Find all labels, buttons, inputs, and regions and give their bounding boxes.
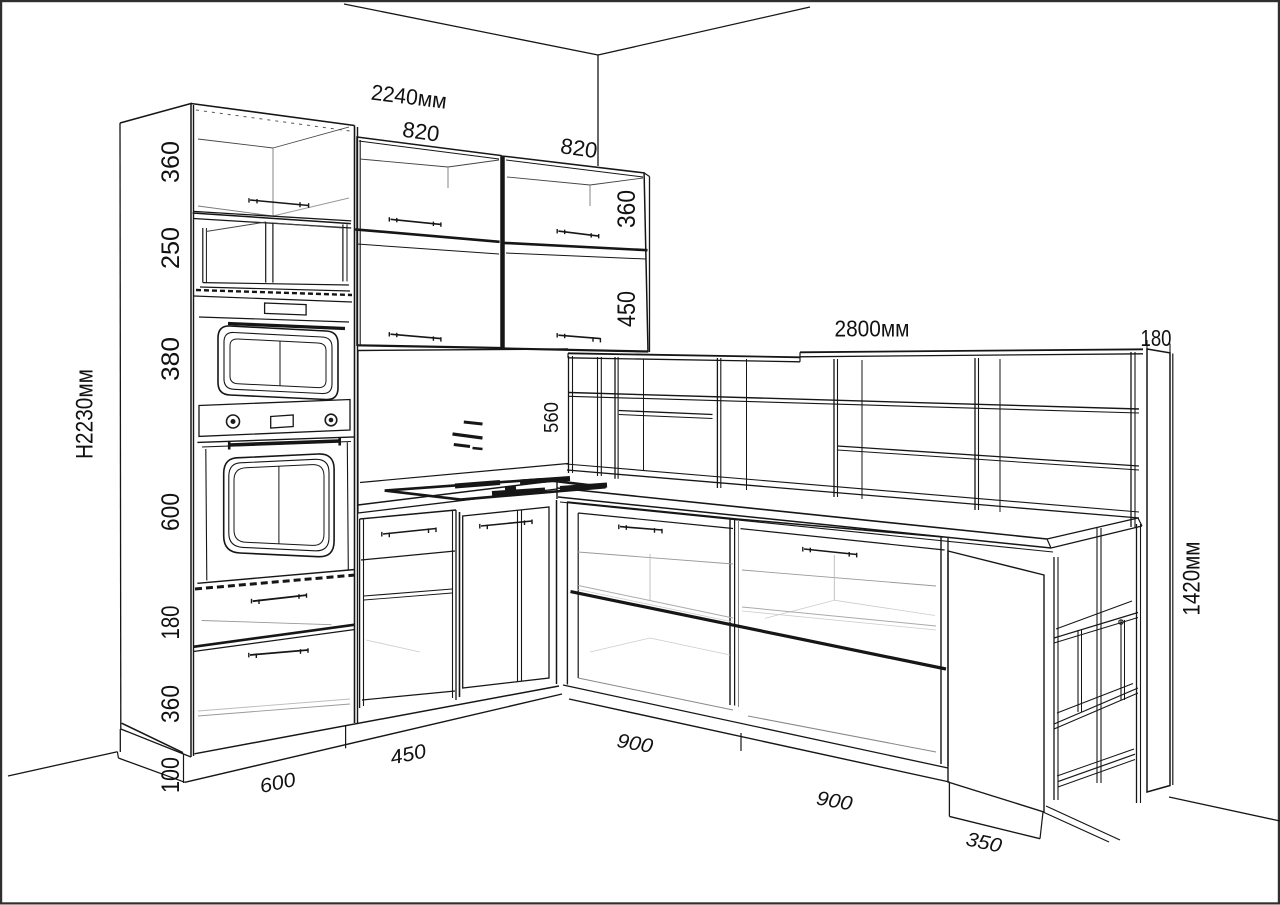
svg-text:360: 360 <box>157 141 185 183</box>
svg-text:450: 450 <box>613 291 641 327</box>
svg-text:360: 360 <box>613 190 641 228</box>
svg-text:180: 180 <box>1141 325 1172 351</box>
svg-text:380: 380 <box>157 337 185 381</box>
svg-text:820: 820 <box>401 117 441 147</box>
svg-text:600: 600 <box>157 493 185 531</box>
svg-text:1420мм: 1420мм <box>1178 542 1205 616</box>
svg-text:100: 100 <box>157 757 185 793</box>
svg-text:820: 820 <box>559 133 599 163</box>
svg-text:560: 560 <box>541 402 563 433</box>
svg-text:180: 180 <box>157 606 185 640</box>
svg-text:2800мм: 2800мм <box>835 316 910 342</box>
svg-text:H2230мм: H2230мм <box>71 369 98 459</box>
svg-text:360: 360 <box>157 685 185 723</box>
svg-text:250: 250 <box>157 227 185 269</box>
